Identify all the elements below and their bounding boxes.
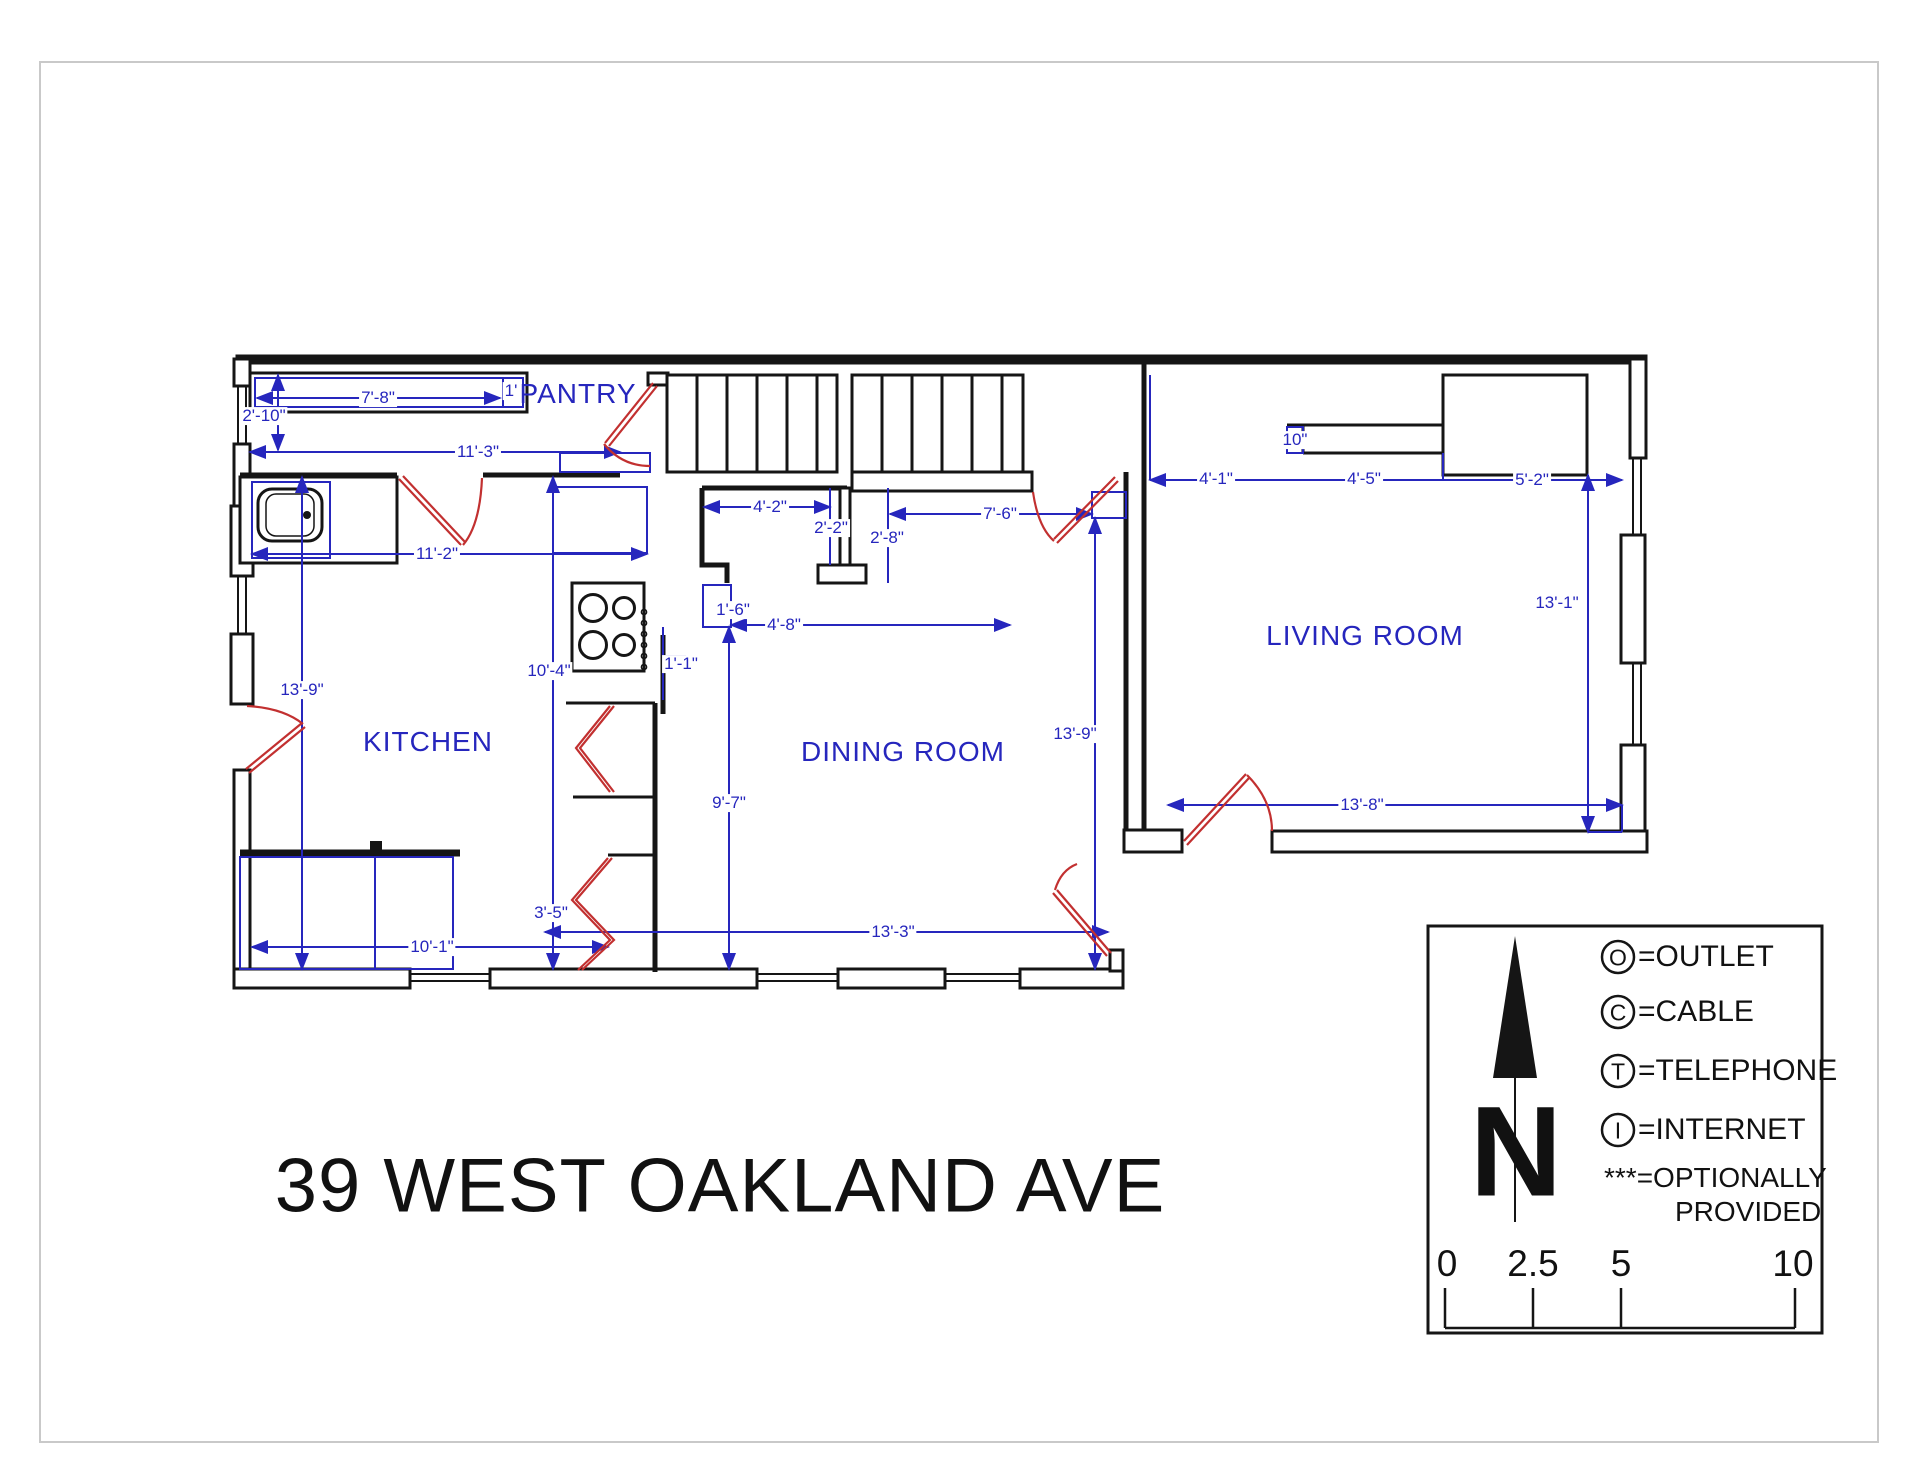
dim-label: 9'-7"	[710, 794, 748, 812]
dim-label: 4'-2"	[751, 498, 789, 516]
dim-label: 2'-8"	[868, 529, 906, 547]
kitchen-counter	[240, 477, 397, 563]
legend-optional-line2: PROVIDED	[1675, 1196, 1821, 1228]
sink-drain	[303, 511, 311, 519]
closet-bifold-upper	[576, 706, 614, 792]
dining-rear-door	[1053, 890, 1111, 956]
room-label-kitchen: KITCHEN	[363, 726, 493, 758]
dim-label: 11'-3"	[455, 443, 501, 461]
dim-label: 3'-5"	[532, 904, 570, 922]
living-room-door	[1184, 774, 1249, 845]
living-room-closet	[1443, 375, 1587, 475]
page-title: 39 WEST OAKLAND AVE	[275, 1143, 1166, 1230]
legend-symbol-outlet: O	[1609, 945, 1627, 972]
dim-label: 5'-2"	[1513, 471, 1551, 489]
floorplan-page: 7'-8" 1' 2'-10" 11'-3" 11'-2" 13'-9" 10'…	[0, 0, 1920, 1484]
legend-label-cable: =CABLE	[1638, 995, 1754, 1029]
legend-optional-line1: ***=OPTIONALLY	[1604, 1162, 1827, 1194]
dim-label: 7'-8"	[359, 389, 397, 407]
legend-symbol-cable: C	[1610, 1000, 1627, 1027]
kitchen-hall-door	[399, 476, 465, 545]
dim-label: 11'-2"	[414, 545, 460, 563]
closet-bifold-lower	[572, 858, 614, 970]
dim-label: 1'-1"	[662, 655, 700, 673]
counter-knob	[370, 841, 382, 850]
dim-label: 13'-9"	[1051, 725, 1098, 743]
staircase	[667, 375, 1023, 472]
dim-label: 10'-1"	[408, 938, 455, 956]
dim-label: 2'-10"	[240, 407, 287, 425]
kitchen-side-door	[246, 723, 305, 773]
scale-tick-0: 0	[1437, 1243, 1458, 1285]
dim-label: 10"	[1281, 431, 1310, 449]
dim-label: 10'-4"	[525, 662, 572, 680]
stove	[572, 583, 644, 671]
room-label-pantry: PANTRY	[520, 378, 637, 410]
dim-label: 13'-1"	[1533, 594, 1580, 612]
north-letter: N	[1470, 1079, 1562, 1226]
legend-label-telephone: =TELEPHONE	[1638, 1054, 1837, 1088]
dim-label: 7'-6"	[981, 505, 1019, 523]
dim-label: 1'	[503, 382, 520, 400]
dim-label: 13'-8"	[1338, 796, 1385, 814]
legend-label-outlet: =OUTLET	[1638, 940, 1774, 974]
room-label-dining: DINING ROOM	[801, 736, 1005, 768]
dim-label: 2'-2"	[812, 519, 850, 537]
hall-dining-door	[1054, 477, 1118, 543]
room-label-living: LIVING ROOM	[1266, 620, 1464, 652]
dim-label: 13'-3"	[869, 923, 916, 941]
scale-tick-2-5: 2.5	[1507, 1243, 1558, 1285]
legend-symbol-internet: I	[1615, 1118, 1621, 1145]
dim-label: 1'-6"	[714, 601, 752, 619]
scale-tick-10: 10	[1772, 1243, 1813, 1285]
legend-label-internet: =INTERNET	[1638, 1113, 1806, 1147]
dim-label: 4'-8"	[765, 616, 803, 634]
legend-symbol-telephone: T	[1611, 1059, 1625, 1086]
dim-label: 4'-1"	[1197, 470, 1235, 488]
dim-label: 13'-9"	[278, 681, 325, 699]
scale-tick-5: 5	[1611, 1243, 1632, 1285]
dim-label: 4'-5"	[1345, 470, 1383, 488]
